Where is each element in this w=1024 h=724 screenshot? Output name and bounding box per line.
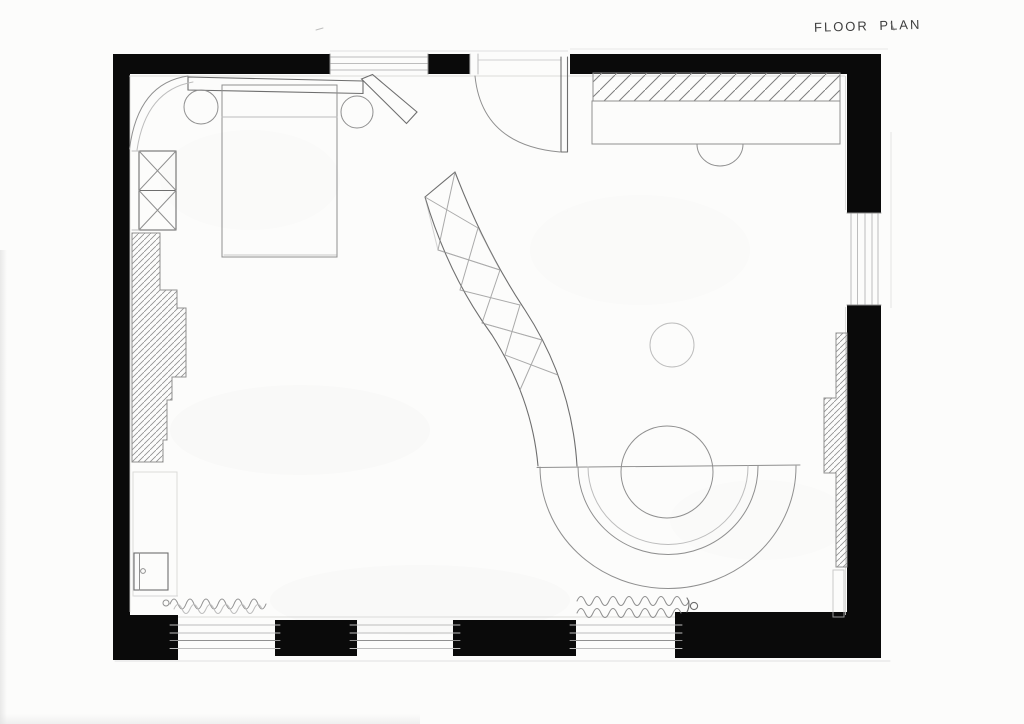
radiator-left — [163, 599, 266, 614]
desk-hatched-top — [593, 73, 840, 101]
window-right — [847, 213, 881, 305]
window-bottom-left — [170, 625, 280, 649]
window-bottom-right — [570, 625, 682, 649]
door-swing-arc — [475, 76, 560, 152]
headboard-angled-wing — [362, 75, 418, 124]
round-table — [621, 426, 713, 518]
side-table — [650, 323, 694, 367]
built-in-unit-right — [824, 333, 847, 617]
desk-chair — [697, 144, 743, 166]
partition-x-bracing — [425, 172, 558, 390]
window-top — [330, 54, 428, 74]
floor-plan-drawing — [0, 0, 1024, 724]
scanned-floor-plan-page: FLOOR PLAN — [0, 0, 1024, 724]
right-wall-recess — [833, 570, 844, 617]
canopy-screen-arc — [130, 76, 194, 150]
partition-inner-edge — [425, 197, 538, 466]
small-cabinet — [134, 553, 178, 596]
desk-counter — [592, 73, 840, 166]
paper-smudges — [160, 130, 850, 635]
entry-door — [470, 54, 568, 152]
desk-front — [592, 101, 840, 144]
wall-face-lines — [115, 23, 894, 661]
bedside-table-right — [341, 96, 373, 128]
bedside-table-left — [184, 90, 218, 124]
